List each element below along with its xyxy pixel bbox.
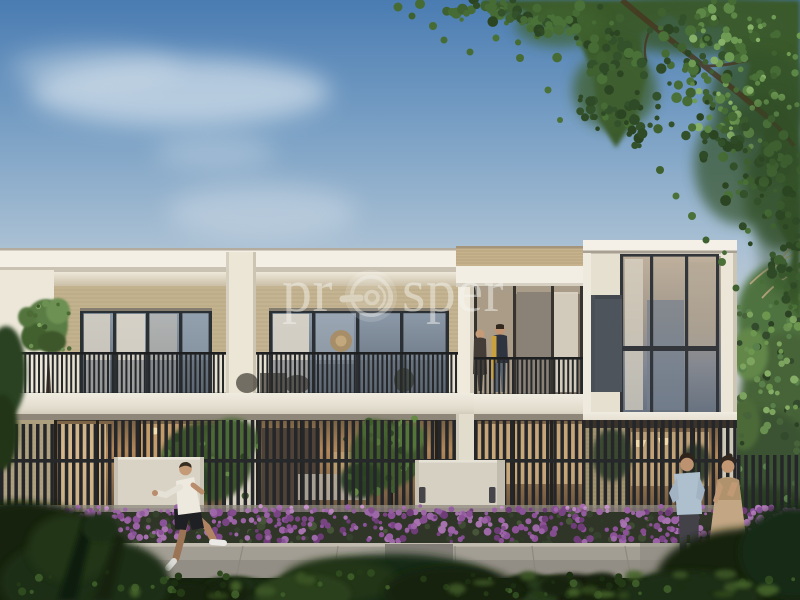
svg-text:sper: sper <box>402 258 504 324</box>
svg-text:pr: pr <box>282 258 333 324</box>
